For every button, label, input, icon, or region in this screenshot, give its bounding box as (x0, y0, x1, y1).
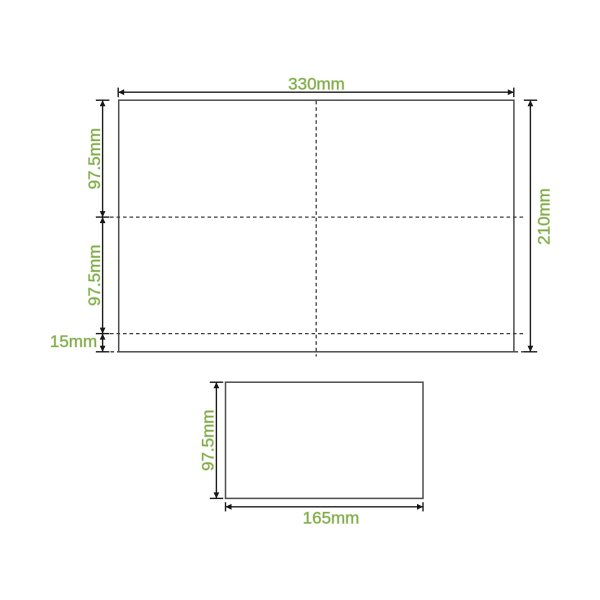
svg-text:15mm: 15mm (50, 332, 97, 351)
svg-text:97.5mm: 97.5mm (85, 128, 104, 189)
svg-text:97.5mm: 97.5mm (199, 410, 218, 471)
svg-text:210mm: 210mm (535, 188, 554, 245)
svg-text:165mm: 165mm (303, 509, 360, 528)
svg-text:97.5mm: 97.5mm (85, 245, 104, 306)
svg-text:330mm: 330mm (288, 75, 345, 94)
